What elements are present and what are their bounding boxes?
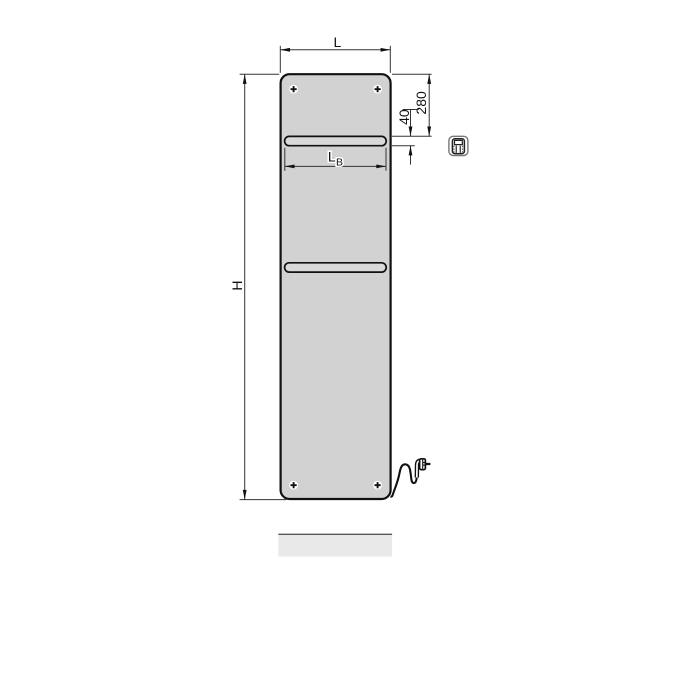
svg-text:B: B xyxy=(336,156,343,168)
svg-text:280: 280 xyxy=(413,91,429,115)
svg-text:40: 40 xyxy=(396,109,412,125)
svg-text:H: H xyxy=(229,281,245,291)
svg-text:L: L xyxy=(334,34,342,50)
svg-text:L: L xyxy=(328,148,336,164)
